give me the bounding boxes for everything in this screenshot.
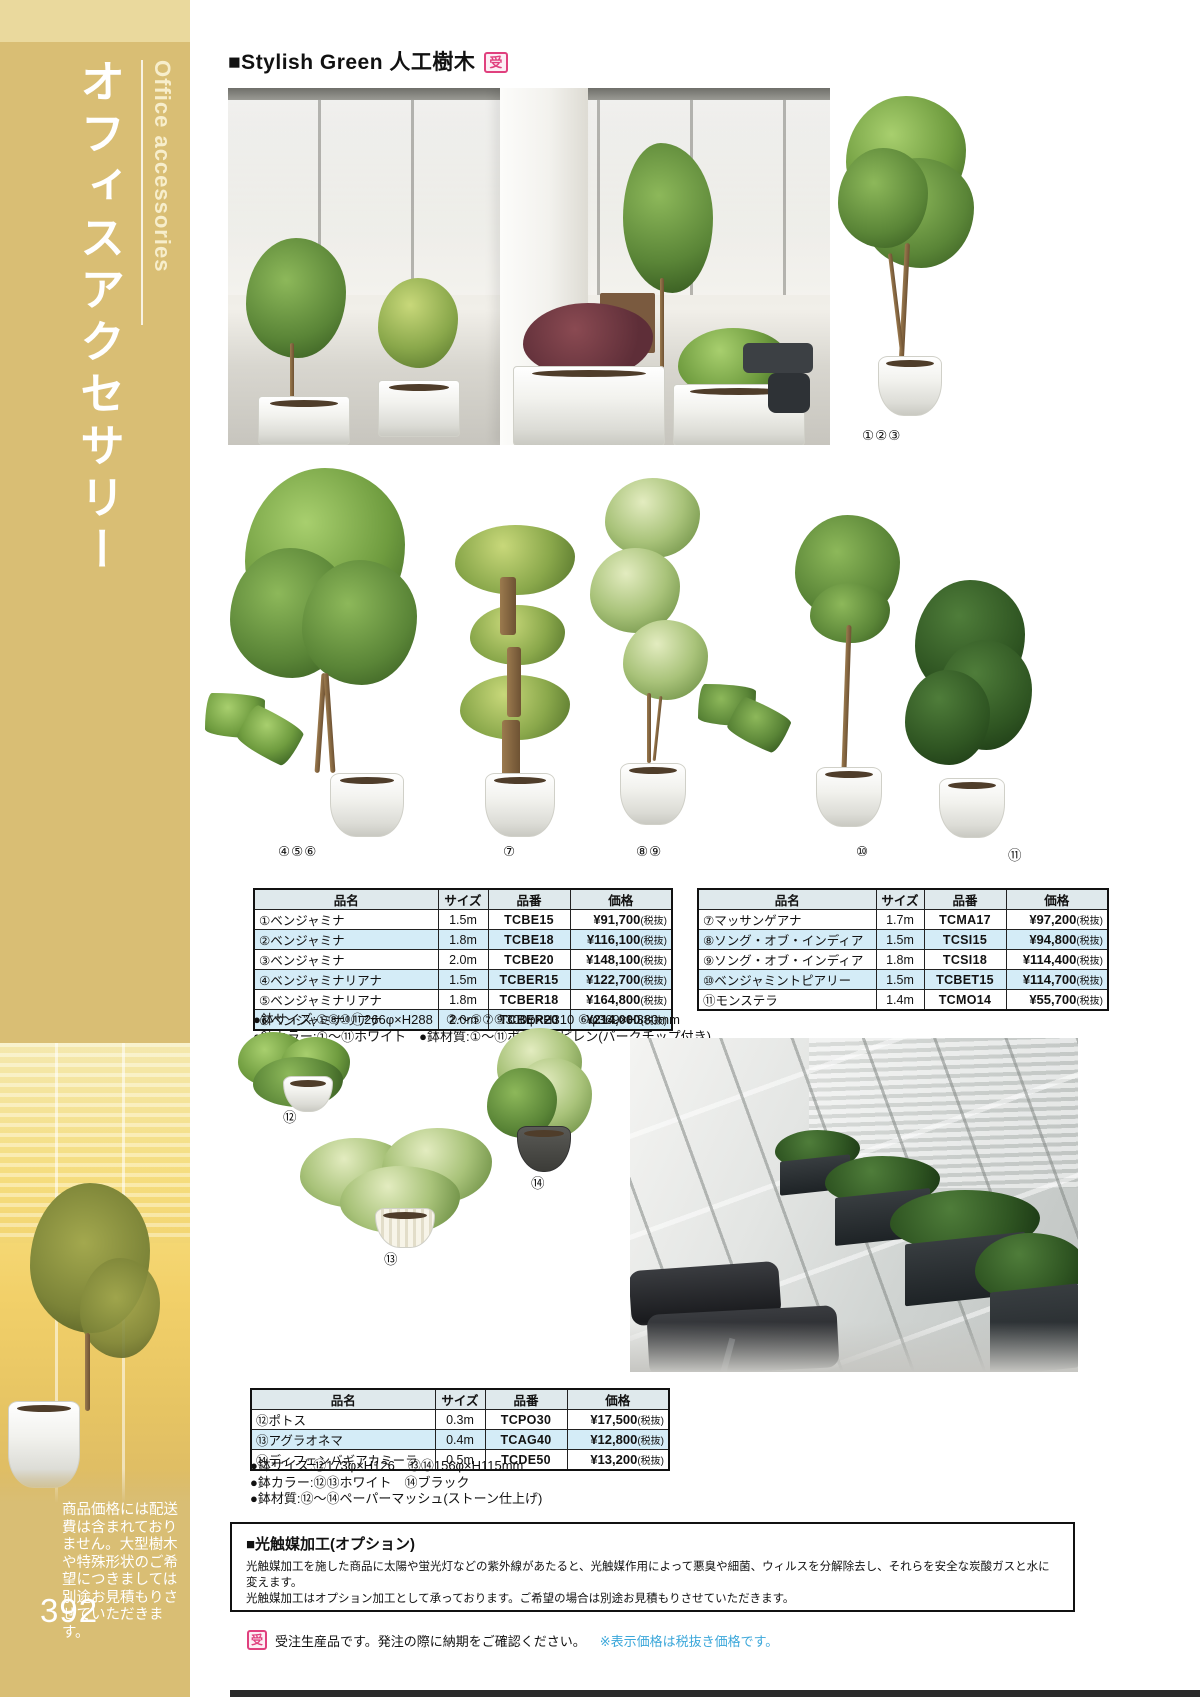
product-code: TCBER18 — [488, 990, 570, 1010]
pot — [816, 767, 882, 827]
section-title-text: ■Stylish Green 人工樹木 — [228, 51, 475, 74]
table-header-row: 品名 サイズ 品番 価格 — [254, 889, 672, 910]
col-header-code: 品番 — [924, 889, 1006, 910]
table-row: ⑦マッサンゲアナ1.7mTCMA17¥97,200(税抜) — [698, 910, 1108, 930]
photocatalyst-option-box: ■光触媒加工(オプション) 光触媒加工を施した商品に太陽や蛍光灯などの紫外線があ… — [230, 1522, 1075, 1612]
trunk — [290, 343, 294, 403]
section-title: ■Stylish Green 人工樹木受 — [228, 46, 508, 76]
sidebar-title: オフィスアクセサリー — [76, 58, 121, 578]
product-price: ¥148,100(税抜) — [570, 950, 672, 970]
page-bottom-bar — [230, 1690, 1200, 1697]
song-of-india-photo — [585, 478, 720, 843]
footer-tax-note: ※表示価格は税抜き価格です。 — [600, 1631, 779, 1650]
office-chair — [768, 373, 810, 413]
col-header-size: サイズ — [435, 1389, 485, 1410]
made-to-order-badge: 受 — [247, 1630, 267, 1650]
pot — [375, 1208, 435, 1248]
pot-spec-notes-lower: ●鉢サイズ:⑫173φ×H126 ⑬⑭156φ×H115mm ●鉢カラー:⑫⑬ホ… — [250, 1458, 542, 1508]
trunk — [653, 696, 663, 761]
photo-label-11: ⑪ — [1008, 844, 1023, 864]
trunk — [841, 625, 851, 770]
office-chair — [743, 343, 813, 373]
product-code: TCPO30 — [485, 1410, 567, 1430]
note-line: ●鉢材質:⑫～⑭ペーパーマッシュ(ストーン仕上げ) — [250, 1491, 542, 1508]
dieffenbachia-photo — [487, 1028, 597, 1178]
table-row: ⑬アグラオネマ0.4mTCAG40¥12,800(税抜) — [251, 1430, 669, 1450]
footer-note-text: 受注生産品です。発注の際に納期をご確認ください。 — [275, 1631, 586, 1650]
product-name: ⑫ポトス — [251, 1410, 435, 1430]
col-header-name: 品名 — [251, 1389, 435, 1410]
product-name: ③ベンジャミナ — [254, 950, 438, 970]
foliage — [623, 620, 708, 700]
product-price: ¥13,200(税抜) — [567, 1450, 669, 1471]
trunk — [507, 647, 521, 717]
monstera-photo — [905, 580, 1035, 845]
option-box-title: ■光触媒加工(オプション) — [246, 1533, 1073, 1554]
product-price: ¥55,700(税抜) — [1006, 990, 1108, 1011]
massangeana-photo — [445, 515, 585, 845]
trunk — [647, 693, 651, 763]
trunk — [500, 577, 516, 635]
product-size: 0.4m — [435, 1430, 485, 1450]
product-table-benjamina: 品名 サイズ 品番 価格 ①ベンジャミナ1.5mTCBE15¥91,700(税抜… — [253, 888, 673, 1031]
footer-note: 受 受注生産品です。発注の際に納期をご確認ください。 ※表示価格は税抜き価格です… — [247, 1630, 778, 1650]
product-name: ⑧ソング・オブ・インディア — [698, 930, 876, 950]
product-name: ①ベンジャミナ — [254, 910, 438, 930]
product-size: 1.5m — [876, 930, 924, 950]
product-price: ¥12,800(税抜) — [567, 1430, 669, 1450]
product-name: ②ベンジャミナ — [254, 930, 438, 950]
product-name: ⑦マッサンゲアナ — [698, 910, 876, 930]
table-row: ⑪モンステラ1.4mTCMO14¥55,700(税抜) — [698, 990, 1108, 1011]
product-price: ¥122,700(税抜) — [570, 970, 672, 990]
sidebar-plant-photo — [0, 1043, 190, 1503]
product-price: ¥91,700(税抜) — [570, 910, 672, 930]
photo-fade — [0, 1469, 190, 1503]
foliage — [80, 1258, 160, 1358]
sidebar-corner-band — [0, 0, 190, 42]
photo-label-7: ⑦ — [503, 844, 516, 860]
aglaonema-photo — [300, 1128, 500, 1248]
col-header-code: 品番 — [488, 889, 570, 910]
sidebar-divider — [141, 60, 143, 325]
leaf-closeup-photo — [205, 683, 305, 771]
product-code: TCBE15 — [488, 910, 570, 930]
note-line: ●鉢サイズ:⑫173φ×H126 ⑬⑭156φ×H115mm — [250, 1458, 542, 1475]
product-code: TCBE20 — [488, 950, 570, 970]
bench-scene-photo — [630, 1038, 1078, 1372]
product-price: ¥164,800(税抜) — [570, 990, 672, 1010]
product-code: TCAG40 — [485, 1430, 567, 1450]
col-header-price: 価格 — [567, 1389, 669, 1410]
photo-label-10: ⑩ — [856, 844, 869, 860]
table-row: ①ベンジャミナ1.5mTCBE15¥91,700(税抜) — [254, 910, 672, 930]
pot — [517, 1126, 571, 1172]
pothos-photo — [238, 1032, 373, 1112]
table-header-row: 品名 サイズ 品番 価格 — [251, 1389, 669, 1410]
table-row: ④ベンジャミナリアナ1.5mTCBER15¥122,700(税抜) — [254, 970, 672, 990]
product-code: TCSI15 — [924, 930, 1006, 950]
table-header-row: 品名 サイズ 品番 価格 — [698, 889, 1108, 910]
foliage — [905, 670, 990, 765]
col-header-size: サイズ — [876, 889, 924, 910]
table-row: ⑩ベンジャミントピアリー1.5mTCBET15¥114,700(税抜) — [698, 970, 1108, 990]
pot — [620, 763, 686, 825]
option-box-line2: 光触媒加工はオプション加工として承っております。ご希望の場合は別途お見積もりさせ… — [246, 1591, 1059, 1607]
table-row: ②ベンジャミナ1.8mTCBE18¥116,100(税抜) — [254, 930, 672, 950]
benjamin-topiary-photo — [790, 515, 905, 845]
product-size: 1.5m — [438, 970, 488, 990]
foliage — [246, 238, 346, 358]
product-size: 1.4m — [876, 990, 924, 1011]
product-size: 1.8m — [876, 950, 924, 970]
product-size: 2.0m — [438, 950, 488, 970]
product-code: TCBE18 — [488, 930, 570, 950]
product-price: ¥114,700(税抜) — [1006, 970, 1108, 990]
product-name: ⑬アグラオネマ — [251, 1430, 435, 1450]
product-code: TCBER15 — [488, 970, 570, 990]
product-name: ⑩ベンジャミントピアリー — [698, 970, 876, 990]
col-header-price: 価格 — [570, 889, 672, 910]
product-code: TCMO14 — [924, 990, 1006, 1011]
benjamina-tree-photo — [836, 88, 982, 428]
product-name: ⑪モンステラ — [698, 990, 876, 1011]
photo-label-456: ④⑤⑥ — [278, 844, 317, 860]
trunk — [324, 673, 336, 773]
product-price: ¥116,100(税抜) — [570, 930, 672, 950]
photo-label-12: ⑫ — [283, 1106, 298, 1126]
product-code: TCSI18 — [924, 950, 1006, 970]
table-row: ⑫ポトス0.3mTCPO30¥17,500(税抜) — [251, 1410, 669, 1430]
table: 品名 サイズ 品番 価格 ⑦マッサンゲアナ1.7mTCMA17¥97,200(税… — [697, 888, 1109, 1011]
product-name: ⑨ソング・オブ・インディア — [698, 950, 876, 970]
product-table-other: 品名 サイズ 品番 価格 ⑦マッサンゲアナ1.7mTCMA17¥97,200(税… — [697, 888, 1109, 1011]
photo-label-123: ①②③ — [862, 428, 901, 444]
foliage — [605, 478, 700, 558]
leaf-closeup-photo — [698, 676, 793, 758]
table-row: ⑨ソング・オブ・インディア1.8mTCSI18¥114,400(税抜) — [698, 950, 1108, 970]
photo-label-13: ⑬ — [384, 1248, 399, 1268]
pot — [939, 778, 1005, 838]
table-row: ⑤ベンジャミナリアナ1.8mTCBER18¥164,800(税抜) — [254, 990, 672, 1010]
product-size: 1.8m — [438, 990, 488, 1010]
product-code: TCMA17 — [924, 910, 1006, 930]
pot — [485, 773, 555, 837]
sidebar-subtitle: Office accessories — [151, 60, 173, 272]
note-line: ●鉢カラー:⑫⑬ホワイト ⑭ブラック — [250, 1475, 542, 1492]
product-size: 1.8m — [438, 930, 488, 950]
product-price: ¥114,400(税抜) — [1006, 950, 1108, 970]
product-price: ¥17,500(税抜) — [567, 1410, 669, 1430]
product-size: 1.5m — [876, 970, 924, 990]
table-row: ⑧ソング・オブ・インディア1.5mTCSI15¥94,800(税抜) — [698, 930, 1108, 950]
col-header-name: 品名 — [254, 889, 438, 910]
product-size: 1.5m — [438, 910, 488, 930]
col-header-name: 品名 — [698, 889, 876, 910]
col-header-code: 品番 — [485, 1389, 567, 1410]
trunk — [85, 1333, 90, 1411]
table-row: ③ベンジャミナ2.0mTCBE20¥148,100(税抜) — [254, 950, 672, 970]
product-price: ¥97,200(税抜) — [1006, 910, 1108, 930]
office-scene-photo — [228, 88, 830, 445]
note-line: ●鉢サイズ:①⑧⑩⑪266φ×H288 ②～⑤⑦⑨300φ×H310 ⑥φ369… — [253, 1012, 711, 1029]
pot — [878, 356, 942, 416]
photo-label-89: ⑧⑨ — [636, 844, 662, 860]
product-size: 1.7m — [876, 910, 924, 930]
photo-label-14: ⑭ — [531, 1172, 546, 1192]
product-code: TCBET15 — [924, 970, 1006, 990]
col-header-price: 価格 — [1006, 889, 1108, 910]
product-name: ⑤ベンジャミナリアナ — [254, 990, 438, 1010]
planter — [378, 380, 460, 437]
foliage — [302, 560, 417, 685]
product-price: ¥94,800(税抜) — [1006, 930, 1108, 950]
product-size: 0.3m — [435, 1410, 485, 1430]
product-name: ④ベンジャミナリアナ — [254, 970, 438, 990]
made-to-order-badge: 受 — [484, 52, 508, 73]
trunk — [502, 720, 520, 780]
foliage — [378, 278, 458, 368]
floor — [630, 1322, 1078, 1372]
planter — [513, 366, 665, 445]
planter — [258, 396, 350, 445]
col-header-size: サイズ — [438, 889, 488, 910]
table: 品名 サイズ 品番 価格 ①ベンジャミナ1.5mTCBE15¥91,700(税抜… — [253, 888, 673, 1031]
page-number: 392 — [40, 1592, 98, 1630]
ficus-liana-photo — [230, 468, 420, 846]
pot — [330, 773, 404, 837]
option-box-line1: 光触媒加工を施した商品に太陽や蛍光灯などの紫外線があたると、光触媒作用によって悪… — [246, 1559, 1059, 1591]
